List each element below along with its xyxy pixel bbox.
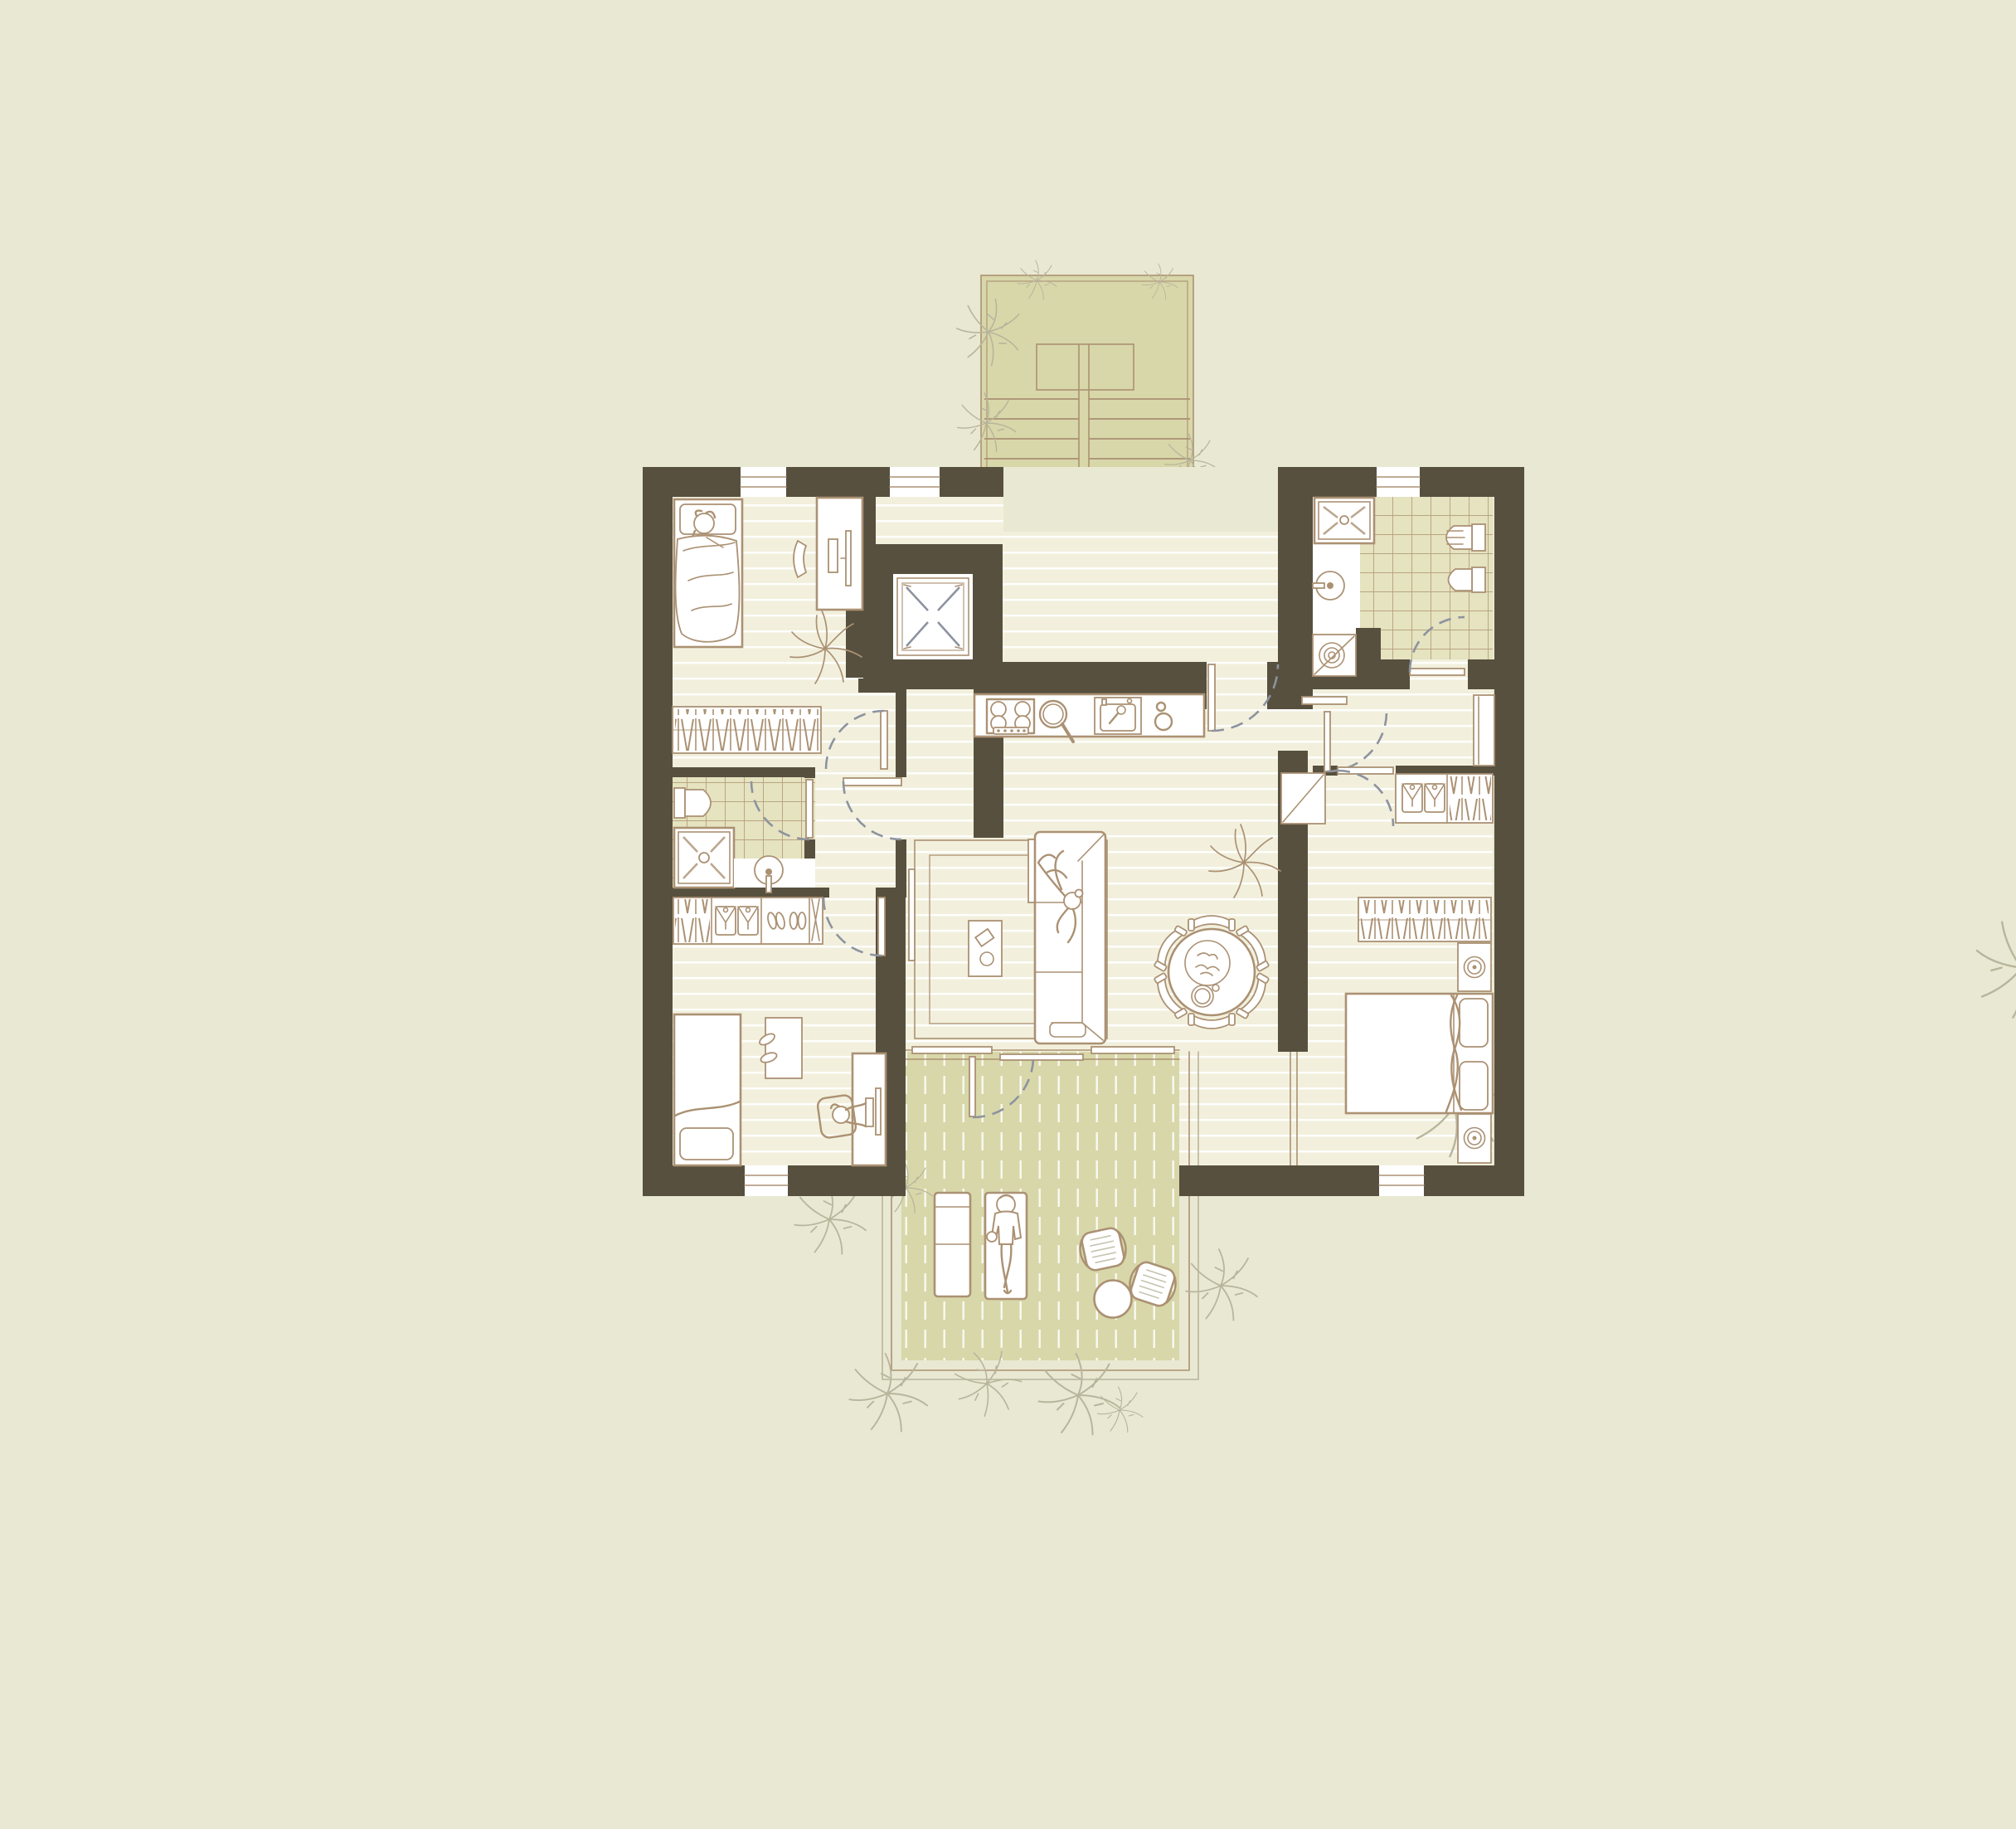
sun-lounger-with-person xyxy=(985,1193,1027,1299)
window xyxy=(890,467,940,497)
wardrobe xyxy=(1358,897,1491,941)
toilet xyxy=(674,788,711,818)
nightstand xyxy=(1458,943,1491,991)
washbasin xyxy=(734,856,815,893)
window xyxy=(1379,1165,1424,1196)
washing-machine xyxy=(1313,635,1356,676)
sofa xyxy=(1028,832,1105,1043)
shower xyxy=(1314,498,1374,543)
wardrobe-row xyxy=(673,897,823,944)
keyboard xyxy=(828,539,838,572)
toilet xyxy=(1446,524,1485,551)
desk-chair xyxy=(794,541,806,577)
terrace-side-table xyxy=(1095,1281,1132,1318)
hanging-shirt-icon xyxy=(738,907,758,935)
keyboard xyxy=(866,1098,873,1126)
shoe-cabinet xyxy=(1396,774,1493,823)
coffee-table xyxy=(969,921,1002,976)
bedroom2-door-leaf xyxy=(878,897,885,956)
bidet xyxy=(1449,567,1486,592)
floor-plan-page xyxy=(0,0,2016,1829)
nightstand xyxy=(1458,1114,1491,1163)
window xyxy=(745,1165,788,1196)
tv-sideboard xyxy=(909,869,915,961)
desk xyxy=(817,498,862,610)
elevator xyxy=(893,574,973,659)
bathroom2-door-leaf xyxy=(1410,669,1465,675)
blanket xyxy=(676,536,740,642)
pillow xyxy=(1460,1062,1488,1110)
monitor xyxy=(876,1088,881,1135)
wardrobe xyxy=(673,707,821,753)
hanging-shirt-icon xyxy=(1402,784,1422,812)
shower xyxy=(674,828,734,888)
hanging-shirt-icon xyxy=(716,907,736,935)
corner-closet xyxy=(1281,773,1325,824)
terrace-door-leaf xyxy=(969,1057,975,1116)
pillow xyxy=(680,1128,733,1160)
kitchen-sink xyxy=(1095,698,1141,734)
pillow xyxy=(1460,999,1488,1047)
hanging-shirt-icon xyxy=(1425,784,1445,812)
single-bed xyxy=(674,1014,741,1165)
entrance-door-leaf xyxy=(1208,664,1215,731)
living-door-leaf xyxy=(843,778,901,786)
radiator-shelf xyxy=(1302,697,1347,704)
kitchen xyxy=(974,694,1204,742)
bedroom1-door-leaf xyxy=(881,711,887,769)
sun-lounger-empty xyxy=(935,1193,970,1296)
double-bed xyxy=(1346,994,1493,1113)
single-bed xyxy=(674,499,742,647)
bathroom1-door-leaf xyxy=(806,780,813,838)
window xyxy=(741,467,786,497)
tall-cupboard xyxy=(1474,695,1494,766)
monitor xyxy=(846,531,851,586)
window xyxy=(1377,467,1420,497)
floor-plan-canvas xyxy=(0,0,2016,1829)
hall-door-leaf xyxy=(1324,712,1330,771)
